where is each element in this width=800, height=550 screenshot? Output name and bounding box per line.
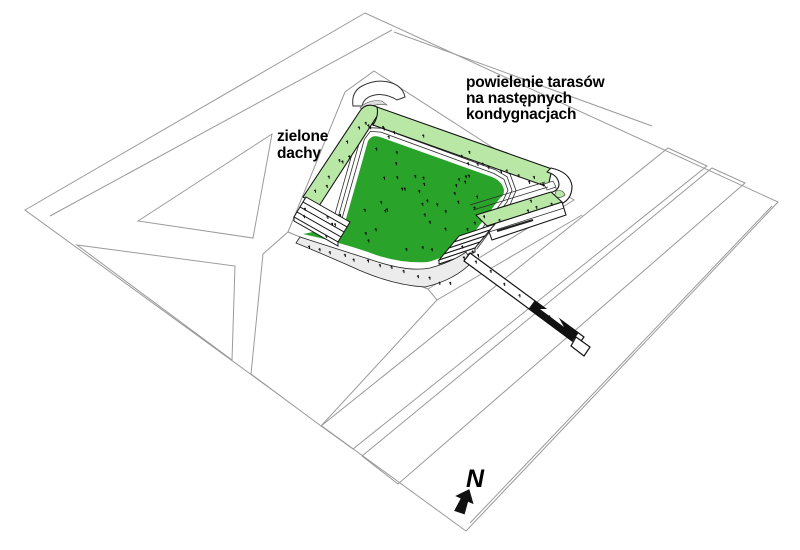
label-green-roofs-line1: zielone	[277, 128, 329, 145]
diagram-canvas: zielone dachy powielenie tarasów na nast…	[0, 0, 800, 550]
label-green-roofs-line2: dachy	[277, 145, 321, 162]
label-terraces-line1: powielenie tarasów	[466, 74, 606, 91]
label-terraces-line3: kondygnacjach	[466, 106, 576, 123]
site-diagram: zielone dachy powielenie tarasów na nast…	[0, 0, 800, 550]
north-letter: N	[466, 465, 485, 493]
label-terraces-line2: na następnych	[466, 90, 572, 107]
